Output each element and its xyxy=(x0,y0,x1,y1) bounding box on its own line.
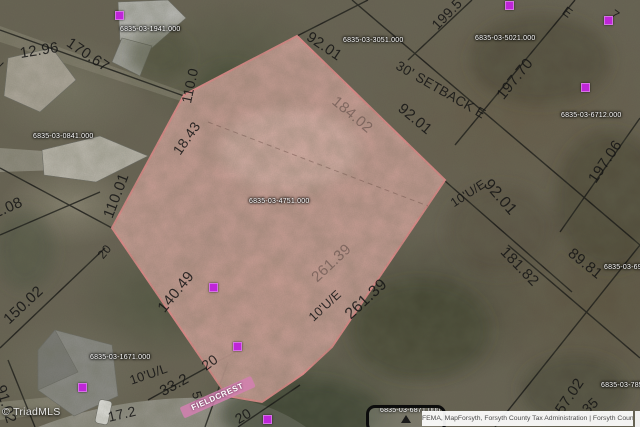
parcel-id-label: 6835-03-5021.000 xyxy=(475,35,535,42)
parcel-point-marker[interactable] xyxy=(581,83,590,92)
north-arrow-icon xyxy=(401,415,411,423)
parcel-point-marker[interactable] xyxy=(263,415,272,424)
parcel-point-marker[interactable] xyxy=(78,383,87,392)
parcel-id-label: 6835-03-1941.000 xyxy=(120,26,180,33)
parcel-point-marker[interactable] xyxy=(209,283,218,292)
parcel-id-label: 6835-03-1671.000 xyxy=(90,354,150,361)
parcel-point-marker[interactable] xyxy=(505,1,514,10)
map-canvas[interactable]: 212.96170.67110.018.4392.0130' SETBACK E… xyxy=(0,0,640,427)
parcel-point-marker[interactable] xyxy=(115,11,124,20)
parcel-id-label: 6835-03-6931.000 xyxy=(604,264,640,271)
parcel-id-label: 6835-03-7851.000 xyxy=(601,382,640,389)
map-attribution: FEMA, MapForsyth, Forsyth County Tax Adm… xyxy=(422,411,633,426)
copyright-watermark: © TriadMLS xyxy=(2,406,61,418)
parcel-id-label: 6835-03-6712.000 xyxy=(561,112,621,119)
parcel-id-label: 6835-03-3051.000 xyxy=(343,37,403,44)
logo-chip xyxy=(635,411,640,427)
parcel-id-label: 6835-03-4751.000 xyxy=(249,198,309,205)
parcel-point-marker[interactable] xyxy=(233,342,242,351)
parcel-id-label: 6835-03-0841.000 xyxy=(33,133,93,140)
parcel-point-marker[interactable] xyxy=(604,16,613,25)
